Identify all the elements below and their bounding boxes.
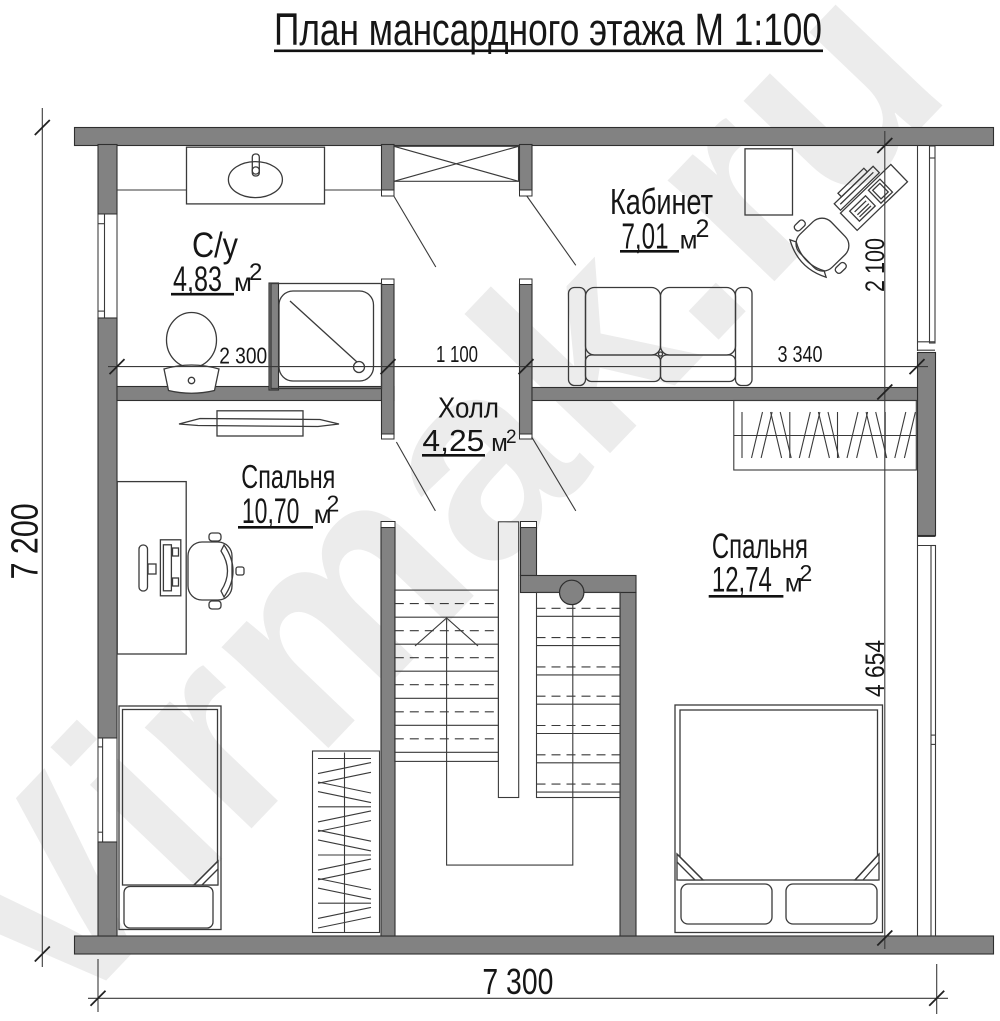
- svg-text:2: 2: [800, 560, 813, 586]
- svg-text:12,74: 12,74: [712, 561, 772, 600]
- svg-text:10,70: 10,70: [242, 492, 300, 531]
- svg-text:2: 2: [506, 427, 517, 448]
- svg-text:План мансардного этажа М 1:100: План мансардного этажа М 1:100: [274, 4, 822, 55]
- svg-text:2 300: 2 300: [219, 343, 267, 369]
- svg-text:1 100: 1 100: [436, 341, 478, 367]
- svg-text:4,25: 4,25: [422, 423, 484, 458]
- svg-text:Холл: Холл: [438, 393, 499, 425]
- svg-text:7 200: 7 200: [5, 503, 47, 579]
- svg-text:3 340: 3 340: [778, 341, 823, 367]
- svg-text:2 100: 2 100: [860, 238, 890, 292]
- svg-text:4 654: 4 654: [860, 640, 890, 697]
- svg-text:2: 2: [249, 259, 262, 286]
- svg-text:2: 2: [327, 490, 340, 516]
- svg-text:Спальня: Спальня: [241, 459, 335, 496]
- svg-text:7 300: 7 300: [482, 961, 553, 1002]
- svg-text:2: 2: [696, 215, 710, 243]
